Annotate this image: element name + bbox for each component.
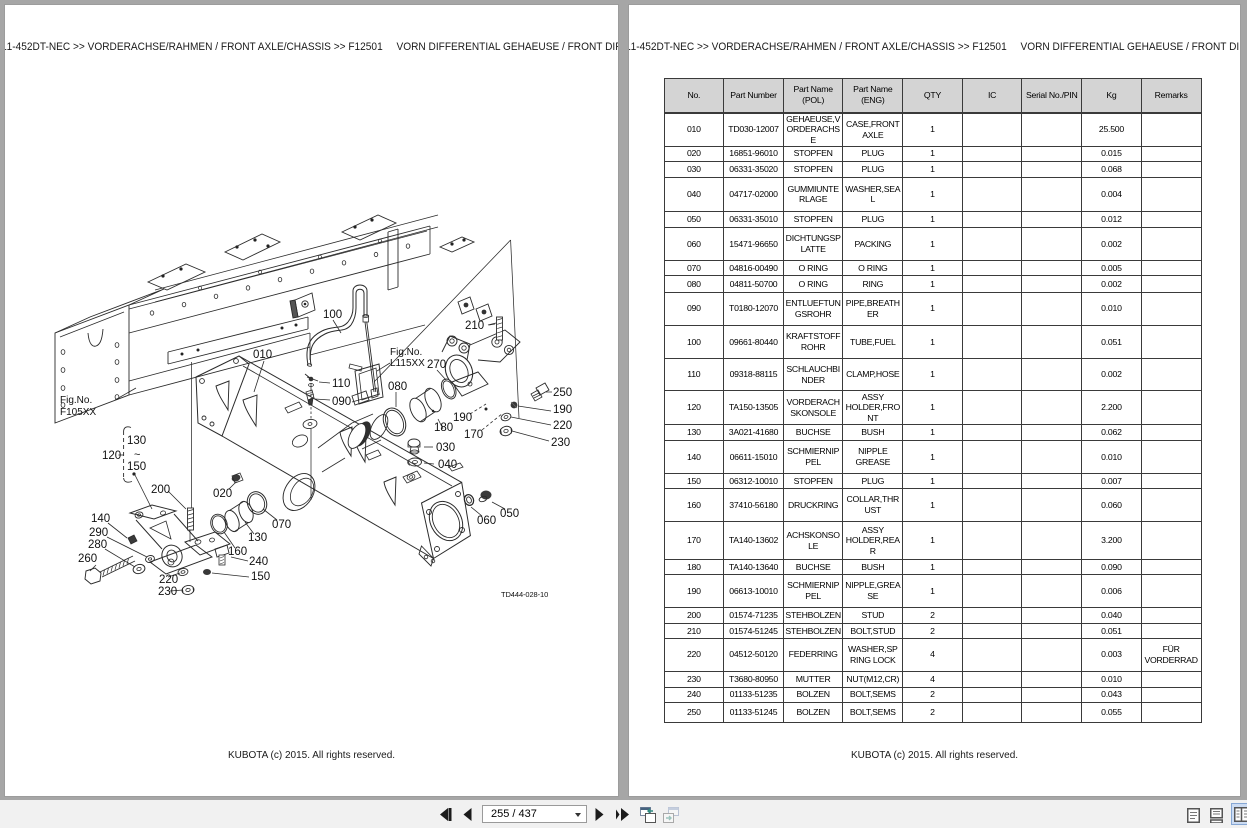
svg-text:080: 080 — [388, 381, 407, 393]
svg-text:100: 100 — [323, 309, 342, 321]
svg-text:070: 070 — [272, 519, 291, 531]
svg-text:F105XX: F105XX — [60, 407, 96, 418]
svg-text:040: 040 — [438, 459, 457, 471]
svg-text:240: 240 — [249, 556, 268, 568]
svg-text:260: 260 — [78, 553, 97, 565]
svg-text:150: 150 — [251, 571, 270, 583]
svg-text:090: 090 — [332, 396, 351, 408]
svg-text:050: 050 — [500, 508, 519, 520]
svg-text:130: 130 — [127, 435, 146, 447]
svg-text:180: 180 — [434, 422, 453, 434]
svg-text:Fig.No.: Fig.No. — [60, 395, 92, 406]
svg-text:Fig.No.: Fig.No. — [390, 347, 422, 358]
svg-text:220: 220 — [553, 420, 572, 432]
svg-text:020: 020 — [213, 488, 232, 500]
svg-text:010: 010 — [253, 349, 272, 361]
svg-text:230: 230 — [551, 437, 570, 449]
svg-text:110: 110 — [332, 378, 350, 390]
svg-text:230: 230 — [158, 586, 177, 598]
svg-text:170: 170 — [464, 429, 483, 441]
svg-text:190: 190 — [553, 404, 572, 416]
svg-text:220: 220 — [159, 574, 178, 586]
svg-text:210: 210 — [465, 320, 484, 332]
svg-text:290: 290 — [89, 527, 108, 539]
svg-text:150: 150 — [127, 461, 146, 473]
svg-text:140: 140 — [91, 513, 110, 525]
svg-text:280: 280 — [88, 539, 107, 551]
svg-text:TD444-028-10: TD444-028-10 — [501, 590, 548, 599]
svg-text:L115XX: L115XX — [390, 358, 425, 369]
svg-text:060: 060 — [477, 515, 496, 527]
svg-text:160: 160 — [228, 546, 247, 558]
svg-text:030: 030 — [436, 442, 455, 454]
svg-text:190: 190 — [453, 412, 472, 424]
svg-text:250: 250 — [553, 387, 572, 399]
svg-text:200: 200 — [151, 484, 170, 496]
svg-text:~: ~ — [134, 449, 140, 461]
svg-text:270: 270 — [427, 359, 446, 371]
svg-text:120: 120 — [102, 450, 121, 462]
svg-text:130: 130 — [248, 532, 267, 544]
